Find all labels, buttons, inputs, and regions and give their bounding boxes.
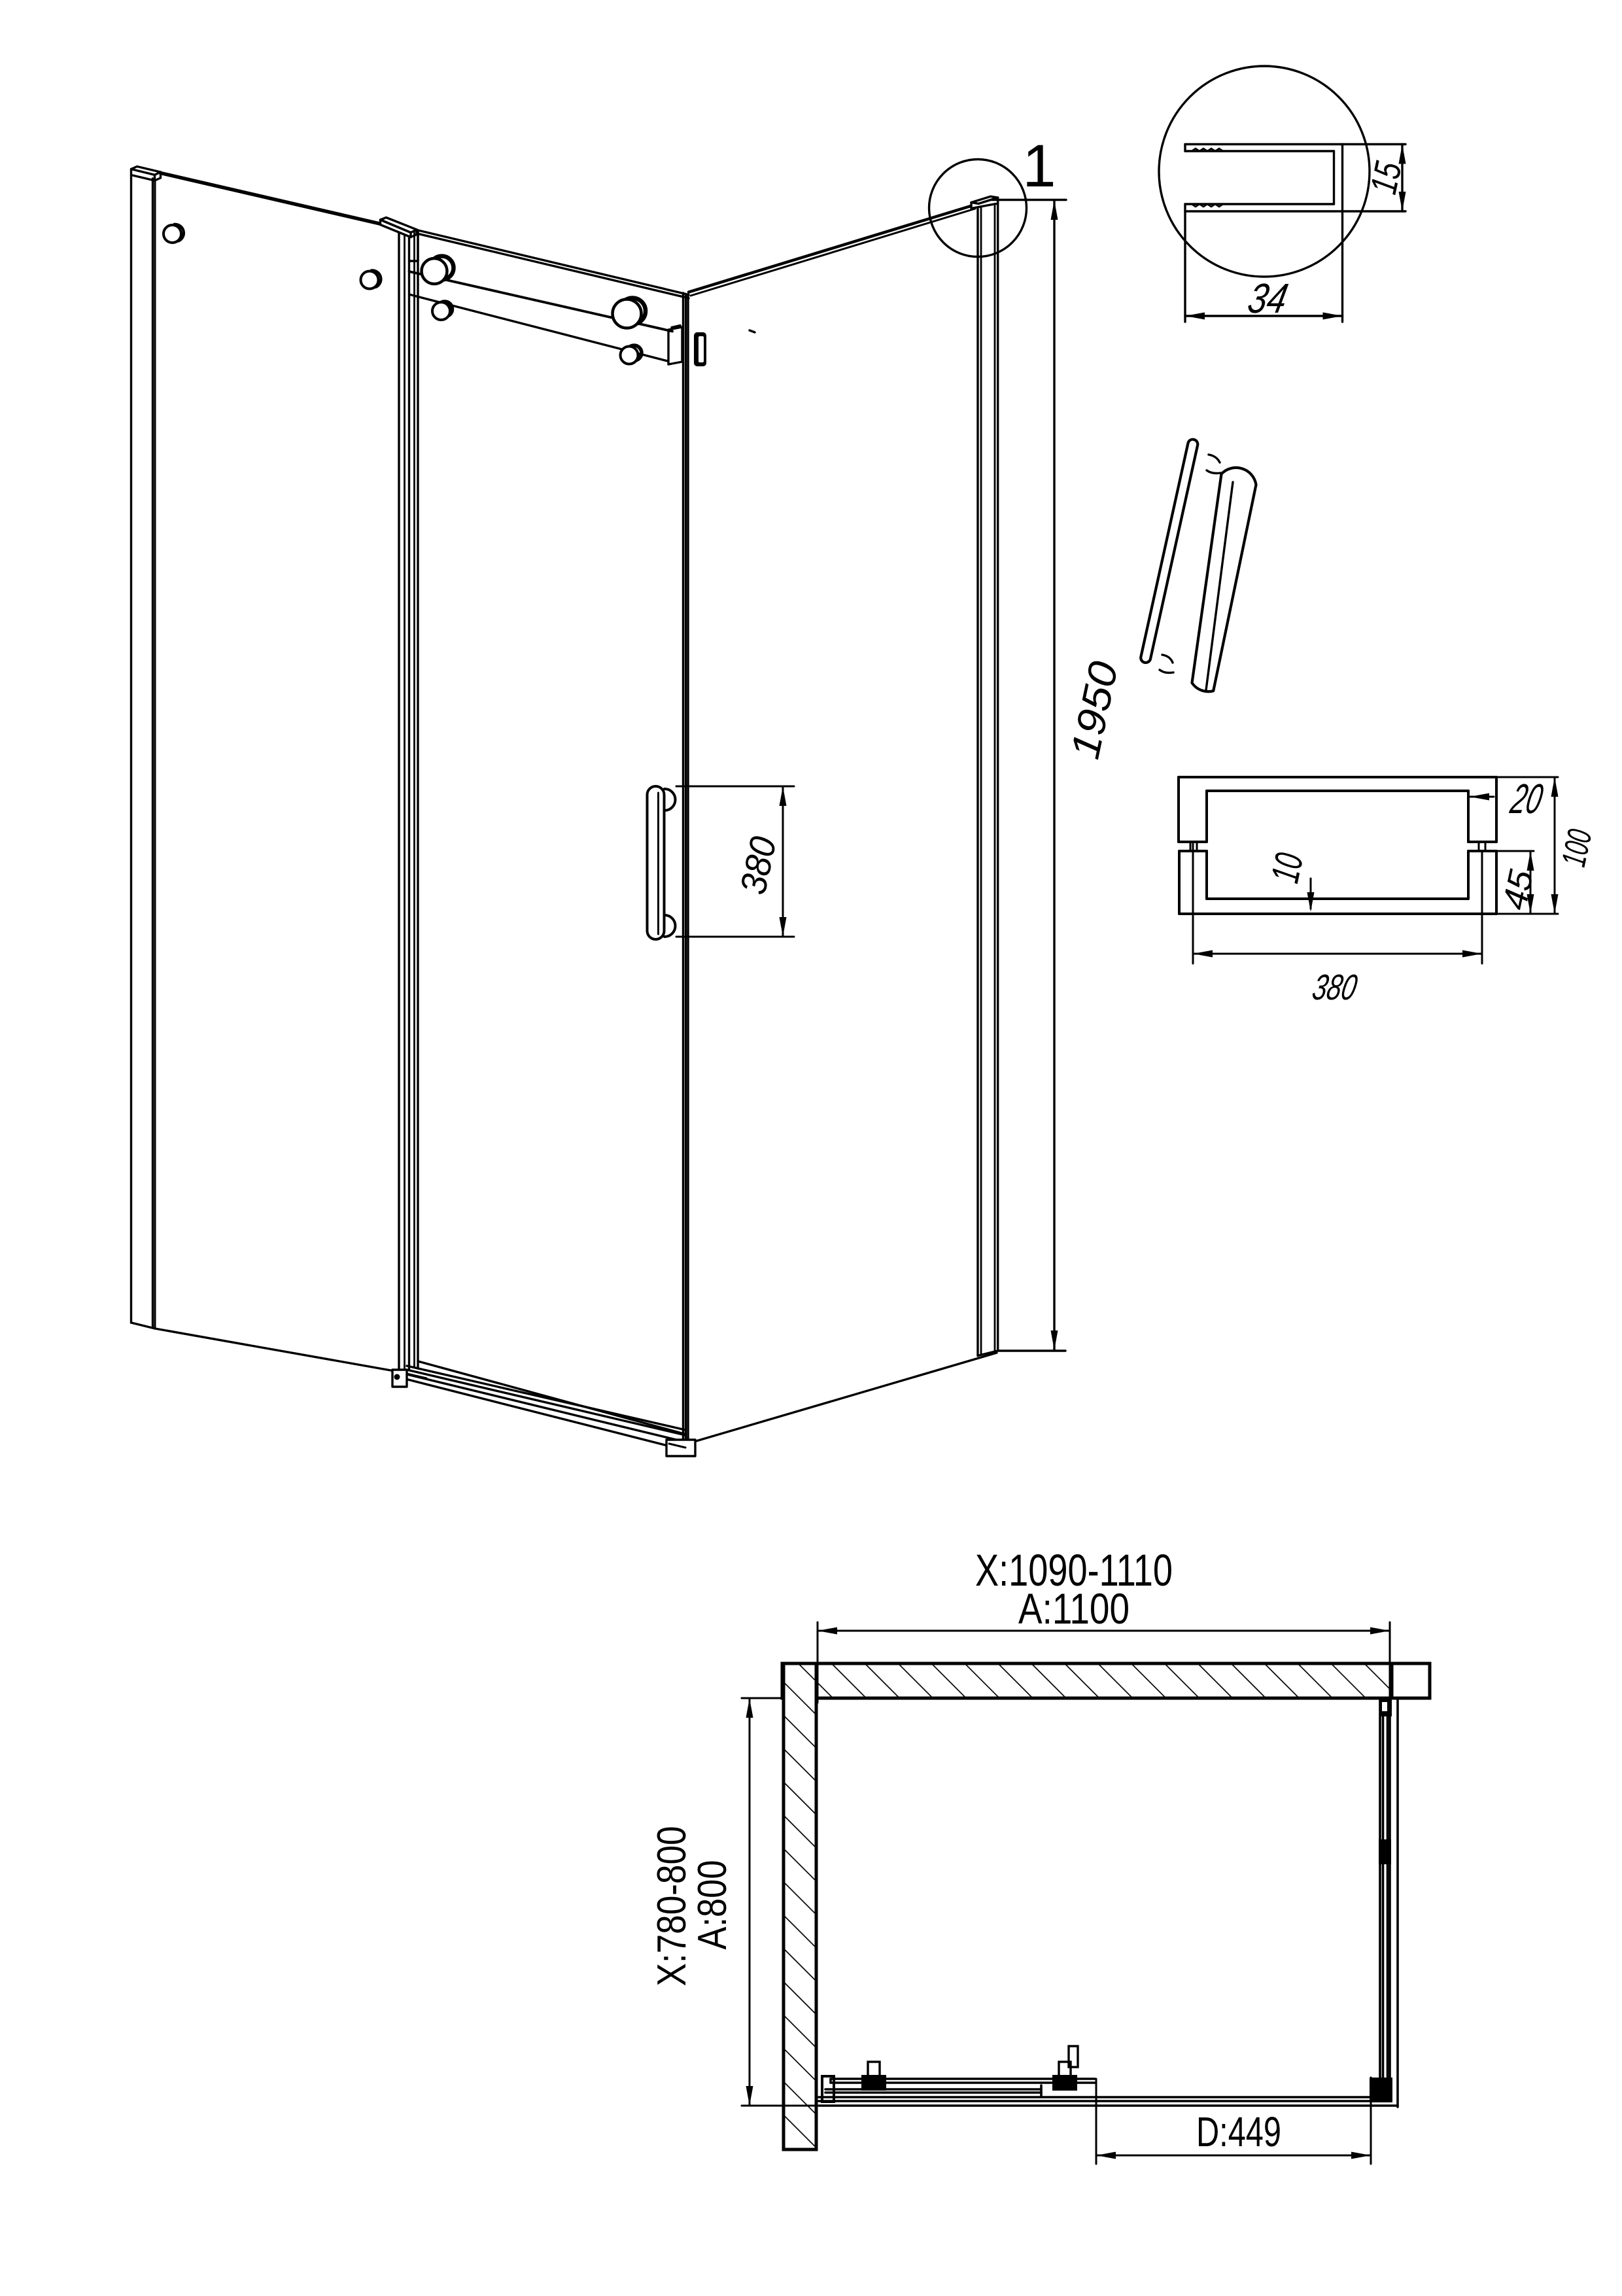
svg-text:380: 380 <box>1309 967 1360 1007</box>
svg-text:100: 100 <box>1555 826 1599 870</box>
svg-text:A:800: A:800 <box>690 1860 735 1950</box>
svg-text:A:1100: A:1100 <box>1018 1584 1130 1633</box>
svg-text:D:449: D:449 <box>1196 2108 1281 2155</box>
svg-text:X:780-800: X:780-800 <box>649 1826 695 1987</box>
svg-text:1: 1 <box>1022 133 1056 200</box>
